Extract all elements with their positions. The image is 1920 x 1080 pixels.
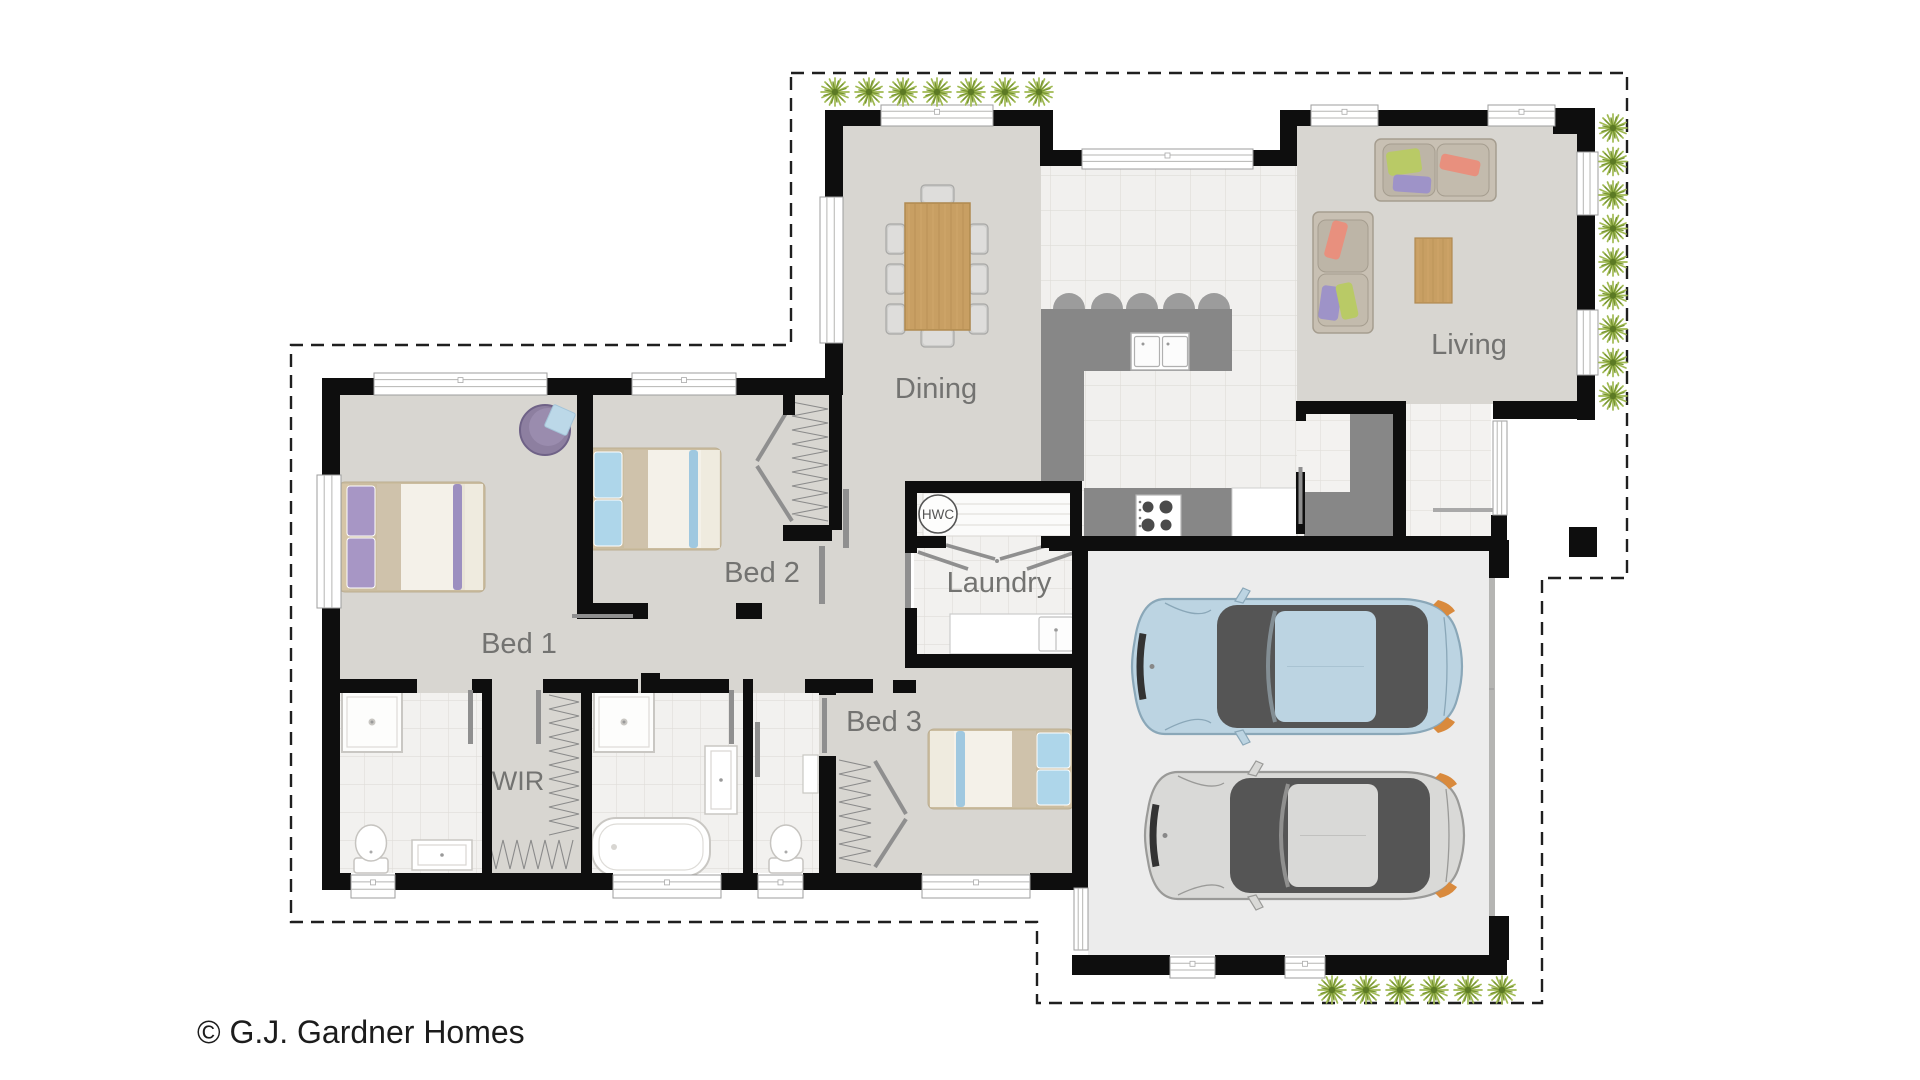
svg-text:Bed 3: Bed 3 (846, 706, 922, 738)
svg-text:© G.J. Gardner Homes: © G.J. Gardner Homes (197, 1014, 525, 1050)
svg-text:WIR: WIR (492, 766, 544, 796)
svg-text:Dining: Dining (895, 373, 977, 405)
svg-text:HWC: HWC (922, 507, 954, 522)
svg-text:Bed 2: Bed 2 (724, 557, 800, 589)
svg-text:Laundry: Laundry (947, 567, 1052, 599)
svg-text:Bed 1: Bed 1 (481, 628, 557, 660)
svg-text:Living: Living (1431, 329, 1507, 361)
